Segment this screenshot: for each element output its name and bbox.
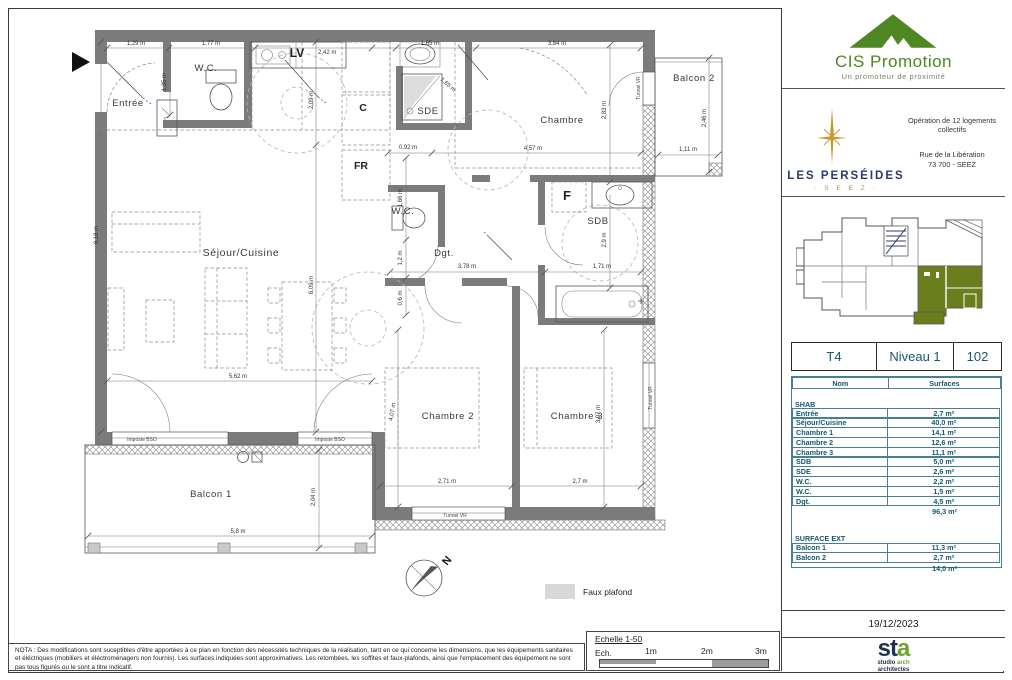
label-f: F	[563, 188, 571, 203]
svg-text:2,7 m: 2,7 m	[572, 479, 587, 485]
svg-text:1,11 m: 1,11 m	[679, 147, 697, 153]
svg-text:8,18 m: 8,18 m	[94, 226, 100, 244]
svg-text:1,65 m: 1,65 m	[439, 77, 457, 94]
legend-swatch	[545, 584, 575, 599]
scale-tick-3m: 3m	[755, 646, 767, 656]
cis-mountain-logo-icon	[838, 10, 948, 52]
developer-tagline: Un promoteur de proximité	[782, 72, 1005, 81]
svg-text:0,92 m: 0,92 m	[399, 145, 417, 151]
ext-total-row: 14,0 m²	[792, 563, 1001, 574]
project-address-1: Rue de la Libération	[902, 150, 1002, 159]
nota-box: NOTA : Des modifications sont suceptible…	[8, 643, 585, 671]
sta-logo-a: a	[897, 635, 909, 662]
wc-top-toilet-icon	[206, 70, 236, 110]
svg-text:1,65 m: 1,65 m	[421, 41, 439, 47]
room-label-sde: SDE	[417, 106, 438, 117]
scale-bar	[599, 659, 769, 668]
room-label-sejour: Séjour/Cuisine	[203, 247, 280, 259]
room-label-chambre2: Chambre 2	[422, 411, 474, 422]
project-address-2: 73 700 - SEEZ	[902, 160, 1002, 169]
date-band: 19/12/2023	[782, 610, 1005, 638]
entry-arrow-icon	[72, 52, 90, 72]
svg-text:2,83 m: 2,83 m	[602, 101, 608, 119]
svg-text:4,57 m: 4,57 m	[524, 146, 542, 152]
label-lv: LV	[290, 46, 304, 60]
room-label-entree: Entrée	[112, 98, 144, 109]
room-label-chambre1: Chambre	[540, 115, 583, 126]
architect-logo: sta studio arch architectes	[782, 638, 1005, 673]
unit-identity-row: T4 Niveau 1 102	[791, 342, 1002, 371]
svg-text:0,6 m: 0,6 m	[398, 290, 404, 305]
scale-title: Echelle 1-50	[595, 634, 642, 644]
key-plan	[796, 204, 992, 336]
svg-text:4,07 m: 4,07 m	[388, 402, 397, 421]
surfaces-table-header: Nom Surfaces	[792, 377, 1001, 389]
key-plan-highlighted-unit	[914, 266, 982, 324]
sta-logo-st: st	[878, 635, 897, 662]
label-fr: FR	[354, 160, 368, 172]
window-note: Tunnel VR	[636, 76, 642, 100]
svg-text:6,09 m: 6,09 m	[309, 276, 315, 294]
svg-text:1,29 m: 1,29 m	[127, 41, 145, 47]
unit-type: T4	[792, 343, 877, 370]
key-plan-stairs	[884, 226, 908, 256]
scale-box: Echelle 1-50 Ech. 1m 2m 3m	[586, 631, 780, 671]
svg-text:2,46 m: 2,46 m	[702, 109, 708, 127]
room-label-balcon2: Balcon 2	[673, 73, 715, 84]
window-note: Imposte BSO	[315, 437, 345, 443]
floor-plan: .wall{fill:#7b7b7b;} .thin{stroke:#555;s…	[0, 0, 780, 645]
svg-text:5,8 m: 5,8 m	[230, 529, 245, 535]
label-c: C	[359, 102, 367, 114]
shab-total-row: 96,3 m²	[792, 506, 1001, 517]
room-label-sdb: SDB	[587, 216, 608, 227]
star-icon	[804, 106, 860, 168]
north-compass-icon: N	[406, 554, 454, 596]
svg-text:1,35 m: 1,35 m	[162, 73, 168, 91]
nota-text: NOTA : Des modifications sont suceptible…	[15, 647, 573, 671]
scale-tick-1m: 1m	[645, 646, 657, 656]
room-label-balcon1: Balcon 1	[190, 489, 232, 500]
legend-label: Faux plafond	[583, 587, 632, 597]
svg-text:2,04 m: 2,04 m	[311, 488, 317, 506]
project-brand: LES PERSÉIDES	[782, 170, 910, 182]
svg-text:3,84 m: 3,84 m	[548, 41, 566, 47]
surfaces-table: Nom Surfaces SHAB Entrée2,7 m² Séjour/Cu…	[791, 376, 1002, 568]
svg-text:2,71 m: 2,71 m	[438, 479, 456, 485]
doors	[107, 45, 643, 432]
room-label-dgt: Dgt.	[434, 248, 454, 259]
drawing-date: 19/12/2023	[868, 619, 918, 630]
title-block-panel: CIS Promotion Un promoteur de proximité …	[781, 8, 1005, 671]
svg-text:1,2 m: 1,2 m	[398, 250, 404, 265]
room-label-chambre3: Chambre 3	[551, 411, 603, 422]
window-note: Imposte BSO	[127, 437, 157, 443]
scale-tick-2m: 2m	[701, 646, 713, 656]
scale-label: Ech.	[595, 648, 612, 658]
table-row: Dgt.4,5 m²	[792, 496, 1001, 507]
svg-text:3,78 m: 3,78 m	[458, 264, 476, 270]
svg-text:1,71 m: 1,71 m	[593, 264, 611, 270]
svg-text:2,09 m: 2,09 m	[309, 91, 315, 109]
window-note: Tunnel VR	[443, 513, 467, 519]
unit-number: 102	[954, 343, 1001, 370]
project-brand-sub: · S E E Z ·	[782, 185, 910, 192]
developer-block: CIS Promotion Un promoteur de proximité	[782, 8, 1005, 89]
svg-text:5,62 m: 5,62 m	[229, 374, 247, 380]
project-block: LES PERSÉIDES · S E E Z · Opération de 1…	[782, 88, 1005, 197]
table-row: Balcon 22,7 m²	[792, 552, 1001, 563]
drawing-sheet: .wall{fill:#7b7b7b;} .thin{stroke:#555;s…	[0, 0, 1012, 680]
svg-text:2,42 m: 2,42 m	[318, 50, 336, 56]
room-label-wc-top: W.C.	[195, 63, 218, 74]
project-operation: Opération de 12 logements collectifs	[902, 116, 1002, 134]
unit-level: Niveau 1	[877, 343, 954, 370]
window-note: Tunnel VR	[648, 386, 654, 410]
svg-text:2,9 m: 2,9 m	[602, 232, 608, 247]
developer-name: CIS Promotion	[782, 52, 1005, 72]
north-label: N	[440, 554, 454, 568]
svg-text:1,66 m: 1,66 m	[398, 189, 404, 207]
room-label-wc-mid: W.C.	[392, 206, 415, 217]
svg-text:1,77 m: 1,77 m	[202, 41, 220, 47]
